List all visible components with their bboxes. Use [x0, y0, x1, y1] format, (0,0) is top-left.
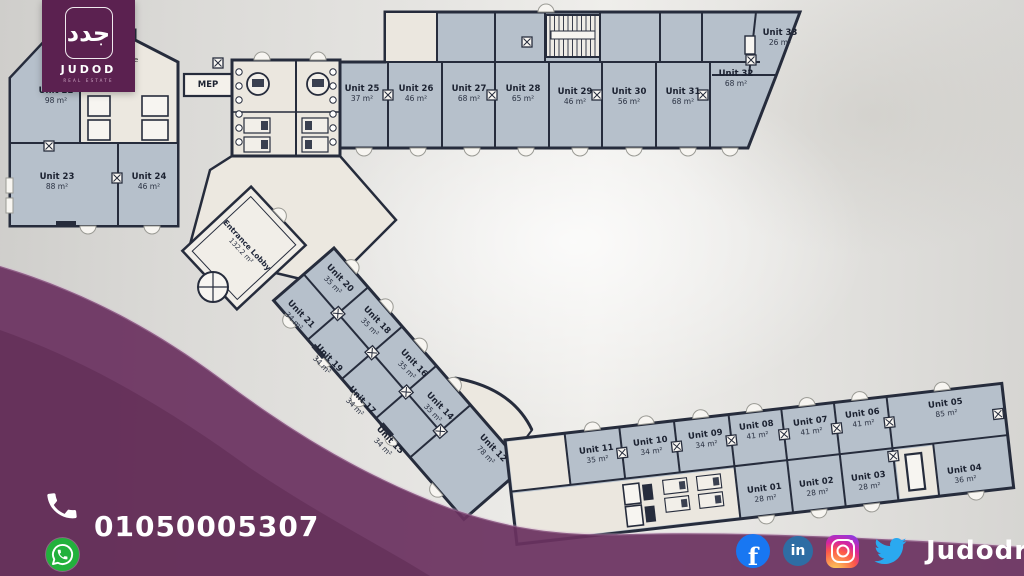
- phone-number: 01050005307: [94, 510, 319, 543]
- logo-calligraphy-mark: جدد: [65, 7, 113, 59]
- social-row: f in Judodre: [736, 534, 1024, 568]
- logo-name: JUDOD: [61, 63, 117, 76]
- logo-subtitle: REAL ESTATE: [63, 78, 113, 83]
- instagram-icon[interactable]: [826, 535, 859, 568]
- contact-block: 01050005307: [44, 488, 319, 543]
- flyer: MEP ce Entrance Lobby 132.2 m² Unit 2298…: [0, 0, 1024, 576]
- social-handle: Judodre: [926, 536, 1024, 566]
- judod-logo: جدد JUDOD REAL ESTATE: [42, 0, 135, 92]
- linkedin-icon[interactable]: in: [783, 536, 813, 566]
- whatsapp-icon[interactable]: [46, 538, 79, 571]
- phone-handset-icon: [42, 486, 82, 526]
- facebook-icon[interactable]: f: [736, 534, 770, 568]
- twitter-icon[interactable]: [872, 535, 909, 567]
